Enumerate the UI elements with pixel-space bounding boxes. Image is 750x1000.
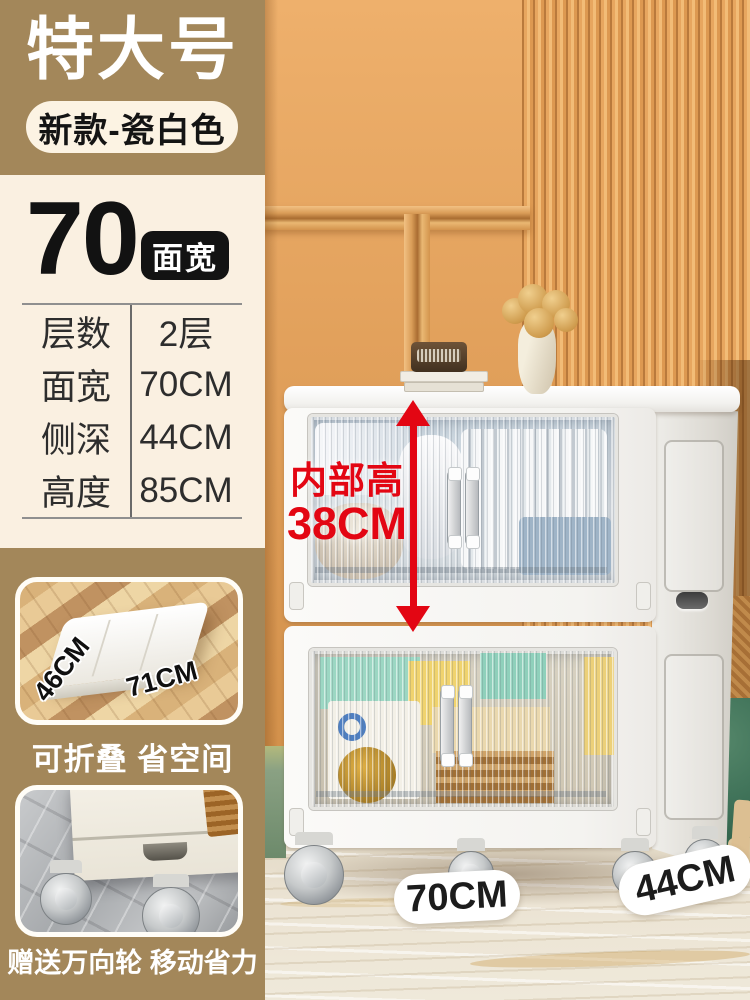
cabinet-side-panel [664,440,724,592]
spec-value: 85CM [130,471,242,511]
caster-wheel-thumb [40,860,92,925]
header-block: 特大号 新款-瓷白色 [0,0,265,175]
width-badge: 面宽 [141,231,229,280]
floor-width-pill: 70CM [393,869,521,926]
table-divider [130,305,132,517]
wheel-hub [301,862,327,888]
spec-label: 高度 [22,465,130,516]
product-detail-image: 内部高 38CM 70CM 44CM 特大号 新款-瓷白色 70 面宽 层数 2… [0,0,750,1000]
dried-flowers [502,284,582,342]
fold-latch [636,582,651,610]
wheels-feature-image [15,785,243,937]
wheel-hub [159,904,184,929]
vintage-radio [411,342,467,372]
wheel-bracket [50,860,82,873]
wheel-bracket [621,838,650,851]
table-row: 侧深 44CM [22,411,242,464]
cabinet-side-handle-slot [676,592,708,609]
door-handle [465,469,479,547]
handle-notch [143,842,188,861]
spec-label: 面宽 [22,359,130,410]
wheel-tire [284,845,344,905]
features-block: 46CM 71CM 可折叠 省空间 赠送万向轮 移动 [0,548,265,1000]
size-title: 特大号 [26,8,239,93]
spec-value: 2层 [130,306,242,357]
inner-height-value: 38CM [283,501,411,546]
wheel-bracket [457,838,486,851]
foldable-caption: 可折叠 省空间 [0,734,265,779]
width-number: 70 [26,187,138,291]
inner-height-arrow-line [410,422,417,610]
spec-label: 层数 [22,306,130,357]
cabinet-bottom-corner [70,785,243,881]
inner-height-arrow-bottom [396,606,430,632]
caster-wheel-front-left [284,832,344,905]
fold-latch [289,582,304,610]
radio-grille [417,349,461,362]
table-row: 面宽 70CM [22,358,242,411]
fold-latch [636,808,651,836]
wheel-tire [40,873,92,925]
wheel-tire [142,887,200,937]
spec-value: 44CM [130,418,242,458]
table-row: 层数 2层 [22,305,242,358]
wheels-caption: 赠送万向轮 移动省力 [0,941,265,980]
inner-height-text: 内部高 [283,462,411,501]
cabinet-lower-unit [284,626,656,848]
wheel-bracket [692,826,718,839]
wheel-bracket [295,832,332,845]
cabinet-side-panel [664,654,724,820]
panel-shadow [265,0,278,845]
table-row: 高度 85CM [22,464,242,517]
spec-value: 70CM [130,365,242,405]
flower [554,308,578,332]
wheel-hub [55,888,77,910]
door-handle [440,687,454,765]
lid-line [139,614,158,671]
wheel-bracket [153,874,189,887]
caster-wheel-thumb [142,874,200,937]
spec-label: 侧深 [22,412,130,463]
lower-unit-window [309,648,617,810]
flower [524,308,554,338]
stacked-book [404,382,484,392]
door-handle [458,687,472,765]
variant-badge: 新款-瓷白色 [26,101,238,153]
wall-molding-horizontal [262,206,530,230]
floor-width-label: 70CM [405,873,508,921]
green-furniture-edge [265,746,286,858]
spec-panel: 70 面宽 层数 2层 面宽 70CM 侧深 44CM 高度 85CM [0,175,265,548]
inner-height-annotation: 内部高 38CM [283,462,411,546]
rattan-drawer [202,785,243,837]
cabinet-side-face [652,402,738,872]
spec-table: 层数 2层 面宽 70CM 侧深 44CM 高度 85CM [22,303,242,519]
door-handle [447,469,461,547]
foldable-feature-image: 46CM 71CM [15,577,243,725]
stacked-book [400,371,488,382]
